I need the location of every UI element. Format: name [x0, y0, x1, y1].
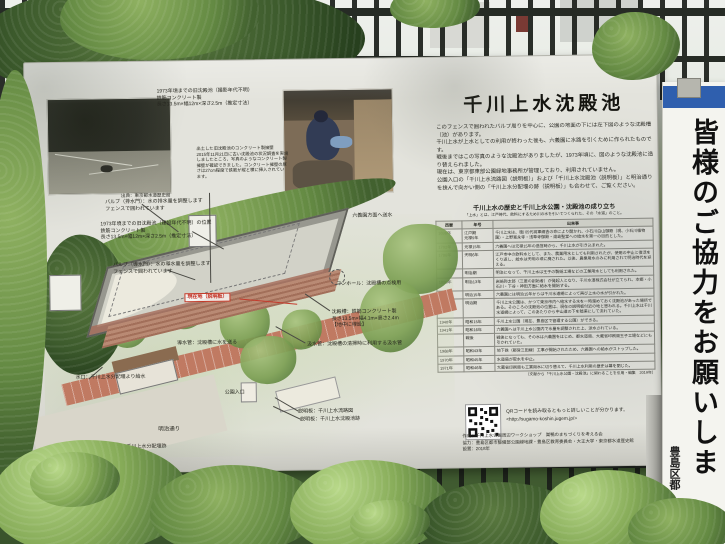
cell-era: 江戸期 元禄9年: [462, 229, 493, 243]
label-valve-drain: バルブ（排水門）：水の排水量を調整します フェンスで囲われています: [105, 198, 235, 213]
sign-title: 千川上水沈殿池: [449, 88, 639, 118]
label-current-location: 現在地（説明板）: [184, 293, 230, 302]
label-signboard-pond: 説明板：千川上水沈殿池跡: [300, 415, 390, 423]
photo-scene: 出典：東京都水道歴史館 1973年頃までの旧沈殿池（撮影年代不明） 鉄筋コンクリ…: [0, 0, 725, 544]
intro-paragraph: このフェンスで囲われたバルブ周りを中心に、公園の地面の下には左下図のような沈殿槽…: [436, 122, 657, 203]
label-old-pond-position: 1973年頃までの旧沈殿池（建設年代不明）の位置 鉄筋コンクリート製 長さ13.…: [100, 219, 240, 240]
cell-era: 明治13年: [463, 277, 494, 291]
cell-event: 江戸市中の飲料水として、また、農業用水としても利用されたが、使用の中止と復活をく…: [493, 248, 653, 269]
cell-era: 明治期: [463, 298, 494, 317]
banner-vertical-text: 皆様のご協力をお願いしま: [689, 118, 716, 538]
photo-figure: [101, 165, 113, 172]
banner-clamp: [677, 78, 701, 98]
cell-era: 戦後: [463, 333, 494, 347]
cell-event: 大蔵省印刷局も工業用水に切り替えて、千川上水利用の歴史は幕を閉じた。: [495, 361, 655, 371]
excavation-note: 出土した旧沈殿池のコンクリート製擁壁 2015年11月21日に古い沈殿池の状況調…: [196, 145, 289, 196]
label-to-rikugien: 六義園方面へ送水: [352, 212, 422, 219]
park-isometric-diagram: バルブ（排水門）：水の排水量を調整します フェンスで囲われています 1973年頃…: [42, 183, 456, 469]
photo-trees-dark: [48, 98, 171, 152]
historic-pond-photo: [47, 97, 172, 195]
label-valve-inlet: バルブ（導水門）：水の導水量を調整します フェンスで囲われています: [113, 260, 243, 275]
table-source-note: （文献から「千川上水公園・沈殿池」に関わることを引用・編集 2019年）: [438, 371, 656, 379]
valve-enclosure: [49, 275, 81, 311]
label-meiji-street: 明治通り: [158, 426, 208, 434]
credits-block: 作成：千川上水公園周辺ワークショップ 巣鴨のまちづくりを考える会 協力：豊島区都…: [462, 430, 668, 453]
label-signboard-flowmap: 説明板：千川上水流路図: [298, 407, 388, 415]
qr-url: <http://sugamo-koshin.jugem.jp/>: [506, 414, 662, 424]
cooperation-banner: 皆様のご協力をお願いしま 豊島区都: [662, 82, 725, 544]
cell-era: 天明6年: [462, 250, 493, 269]
label-intake: 水口：千川上水分配堰より給水: [76, 374, 146, 381]
label-park-entrance: 公園入口: [225, 389, 265, 396]
qr-caption-block: QRコードを読み取るともっと詳しいことが分かります。 <http://sugam…: [506, 407, 662, 425]
cell-era: 昭和46年: [464, 363, 495, 372]
banner-footer-text: 豊島区都: [666, 446, 682, 490]
label-conduit: 導水管：沈殿槽に水を送る: [177, 339, 257, 347]
old-pond-photo-note: 1973年頃までの旧沈殿池（撮影年代不明） 鉄筋コンクリート製 長さ13.5m×…: [157, 86, 341, 108]
label-tank: 沈殿槽：鉄筋コンクリート製 長さ13.5m×幅4.1m×高さ2.4m 【地中に埋…: [332, 308, 437, 329]
information-signboard: 出典：東京都水道歴史館 1973年頃までの旧沈殿池（撮影年代不明） 鉄筋コンクリ…: [23, 54, 663, 475]
history-table-block: 千川上水の歴史と千川上水公園・沈殿池の成り立ち 「上水」とは、江戸時代、飲料にす…: [435, 201, 655, 379]
history-table: 西暦 年号 出来事 1696年 江戸期 元禄9年 千川上水は、徳川5代将軍綱吉の…: [435, 218, 655, 373]
photo-worker-arm: [330, 136, 352, 148]
cell-event: 千川上水公園は、かつて東京市内へ給水する水を一時溜めておく沈殿池があった場所であ…: [494, 296, 654, 317]
